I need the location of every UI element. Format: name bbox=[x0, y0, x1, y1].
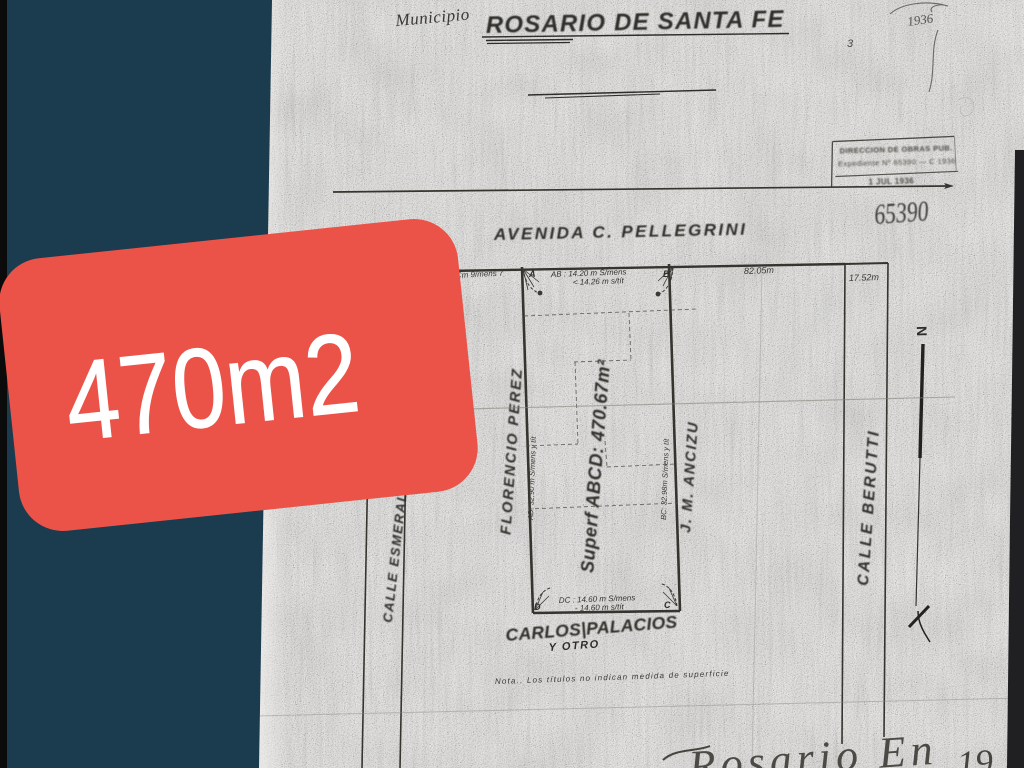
svg-text:3: 3 bbox=[847, 38, 854, 50]
svg-text:1 JUL 1936: 1 JUL 1936 bbox=[868, 176, 914, 186]
svg-text:< 14.26 m s/tít: < 14.26 m s/tít bbox=[573, 276, 625, 287]
svg-text:- 14.60 m s/tít: - 14.60 m s/tít bbox=[575, 602, 625, 613]
svg-text:17.52m: 17.52m bbox=[849, 272, 880, 283]
svg-text:82.05m: 82.05m bbox=[744, 265, 775, 276]
svg-text:C: C bbox=[664, 600, 671, 610]
svg-text:19: 19 bbox=[956, 742, 995, 768]
svg-text:N: N bbox=[914, 326, 930, 337]
svg-text:65390: 65390 bbox=[873, 196, 929, 231]
